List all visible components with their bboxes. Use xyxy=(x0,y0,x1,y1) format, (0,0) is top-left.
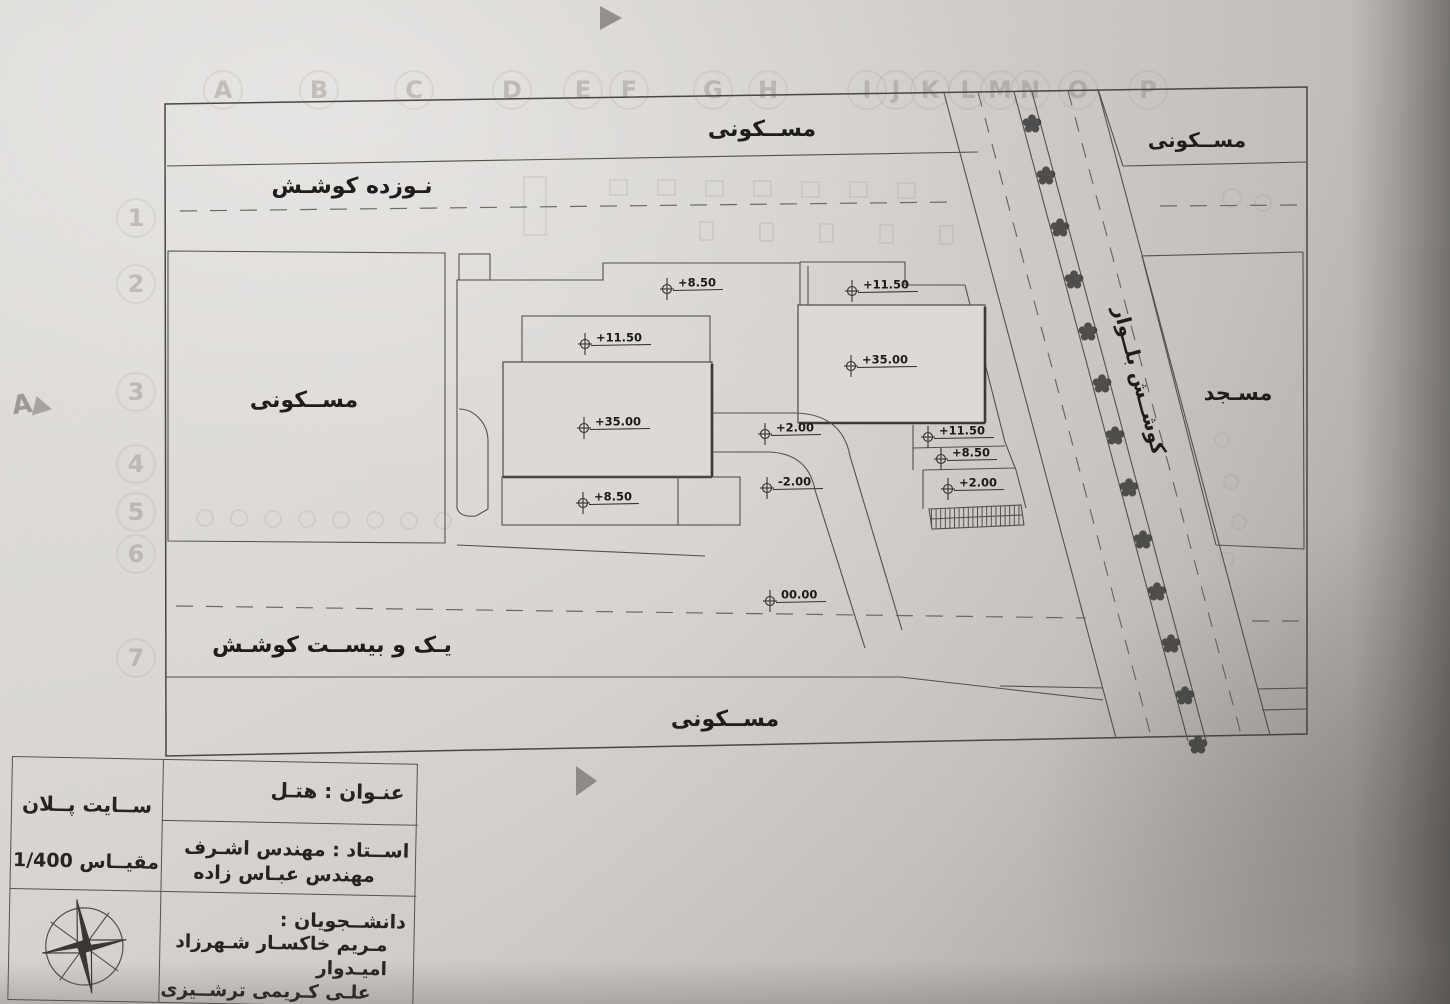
elevation-marker: -2.00 xyxy=(760,475,823,500)
photo-edge-right xyxy=(1350,0,1450,1004)
professor-cell: اســتاد : مهندس اشـرف مهندس عبـاس زاده xyxy=(160,821,417,897)
elevation-marker: +8.50 xyxy=(660,276,723,301)
elevation-label: +11.50 xyxy=(596,331,642,345)
elevation-marker: +8.50 xyxy=(576,490,639,515)
top-strip-edge xyxy=(167,152,978,166)
sheet-title: ســایت پــلان xyxy=(22,791,152,817)
elevation-marker: +2.00 xyxy=(941,476,1004,501)
elevation-marker: +11.50 xyxy=(921,424,994,449)
label-residential-top: مســکونی xyxy=(708,117,816,142)
sheet-title-cell: ســایت پــلان مقیــاس 1/400 xyxy=(10,757,163,892)
elevation-label: +35.00 xyxy=(862,353,908,367)
project-title-cell: عنـوان : هتـل xyxy=(162,760,419,826)
label-residential-left: مســکونی xyxy=(250,388,358,413)
label-street-bottom: یـک و بیســت کوشـش xyxy=(212,633,452,658)
elevation-label: +8.50 xyxy=(594,490,632,504)
photo-edge-bottom xyxy=(0,960,1450,1004)
elevation-marker: +11.50 xyxy=(845,278,918,303)
photographed-site-plan: ABCDEFGHIJKLMNOP 1234567 A xyxy=(0,0,1450,1004)
elevation-label: +35.00 xyxy=(595,415,641,429)
elevation-label: +8.50 xyxy=(952,446,990,460)
elevation-label: -2.00 xyxy=(778,475,811,489)
elevation-label: 00.00 xyxy=(781,588,817,602)
elevation-marker: +11.50 xyxy=(578,331,651,356)
ghost-triangle-top-icon xyxy=(600,6,622,30)
elevation-label: +11.50 xyxy=(863,278,909,292)
label-street-top: نـوزده کوشـش xyxy=(271,174,432,199)
elevation-label: +2.00 xyxy=(776,421,814,435)
sheet-scale: مقیــاس 1/400 xyxy=(13,849,159,874)
label-residential-bottom: مســکونی xyxy=(671,707,779,732)
elevation-marker: +8.50 xyxy=(934,446,997,471)
elevation-label: +11.50 xyxy=(939,424,985,438)
elevation-marker: +2.00 xyxy=(758,421,821,446)
elevation-label: +2.00 xyxy=(959,476,997,490)
professor-line2: مهندس عبـاس زاده xyxy=(161,860,409,890)
project-title: عنـوان : هتـل xyxy=(270,778,404,805)
elevation-label: +8.50 xyxy=(678,276,716,290)
ghost-triangle-bottom-icon xyxy=(576,766,597,796)
elevation-marker: 00.00 xyxy=(763,588,826,613)
